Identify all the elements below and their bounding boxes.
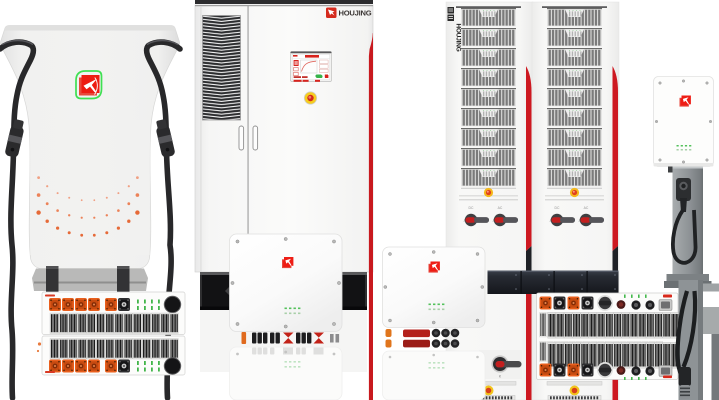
svg-text:HOUJING: HOUJING xyxy=(339,8,372,17)
svg-text:DC: DC xyxy=(555,206,560,210)
svg-text:AC: AC xyxy=(498,206,503,210)
svg-text:DC: DC xyxy=(469,206,474,210)
svg-text:HOUJING: HOUJING xyxy=(455,24,462,52)
svg-text:AC: AC xyxy=(584,206,589,210)
